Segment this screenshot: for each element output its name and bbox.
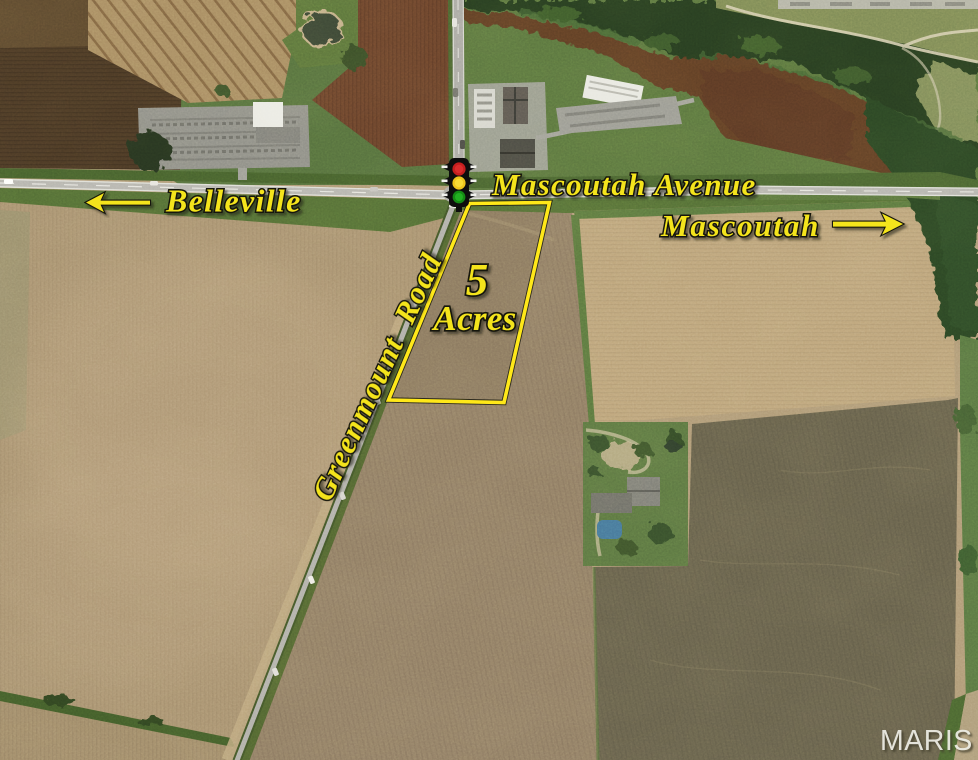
svg-text:Mascoutah Avenue: Mascoutah Avenue [491, 167, 757, 202]
svg-text:MARIS: MARIS [880, 725, 973, 757]
svg-text:Belleville: Belleville [165, 183, 302, 219]
svg-text:5: 5 [466, 255, 489, 305]
svg-text:Mascoutah: Mascoutah [660, 208, 820, 243]
svg-text:Acres: Acres [431, 299, 516, 338]
